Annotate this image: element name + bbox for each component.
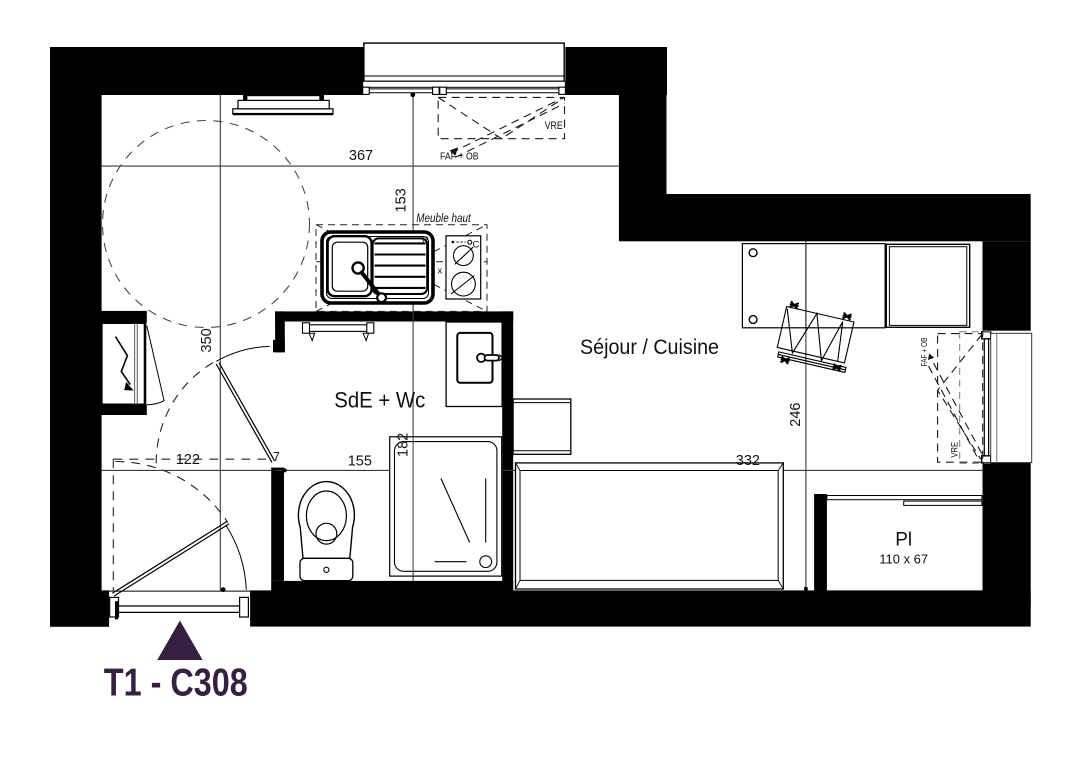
svg-text:C: C — [473, 240, 480, 251]
svg-text:122: 122 — [176, 452, 200, 468]
svg-text:x: x — [438, 266, 443, 277]
svg-text:Pl: Pl — [895, 530, 912, 551]
svg-text:7: 7 — [273, 450, 280, 464]
svg-text:SdE + Wc: SdE + Wc — [334, 387, 425, 412]
svg-text:246: 246 — [788, 402, 804, 426]
svg-text:FAF + OB: FAF + OB — [920, 337, 929, 366]
svg-text:332: 332 — [736, 453, 760, 469]
svg-text:T1 - C308: T1 - C308 — [104, 662, 248, 705]
svg-text:FAF + OB: FAF + OB — [440, 151, 479, 162]
svg-text:155: 155 — [348, 453, 372, 469]
svg-text:182: 182 — [395, 433, 411, 457]
svg-text:350: 350 — [199, 328, 215, 352]
svg-text:Meuble haut: Meuble haut — [416, 213, 471, 225]
svg-text:153: 153 — [394, 188, 410, 212]
svg-text:110 x 67: 110 x 67 — [879, 552, 928, 567]
svg-text:367: 367 — [349, 148, 373, 164]
svg-text:Séjour / Cuisine: Séjour / Cuisine — [580, 336, 719, 359]
svg-text:R: R — [422, 235, 429, 246]
svg-text:VRE: VRE — [949, 442, 960, 458]
svg-text:VRE: VRE — [545, 120, 563, 132]
